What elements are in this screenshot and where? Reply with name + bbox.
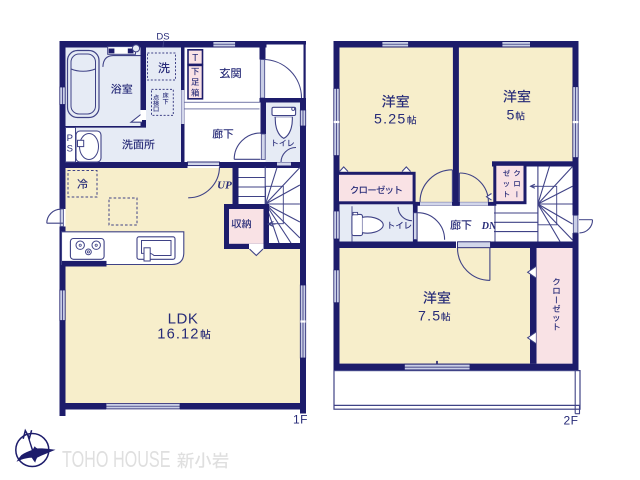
- svg-text:5.25: 5.25: [374, 112, 406, 128]
- svg-text:DS: DS: [156, 32, 169, 43]
- svg-text:P: P: [67, 133, 73, 144]
- svg-text:7.5: 7.5: [418, 308, 441, 324]
- svg-text:DN: DN: [481, 221, 497, 232]
- svg-text:TOHO HOUSE: TOHO HOUSE: [62, 446, 171, 472]
- svg-text:5: 5: [507, 108, 515, 124]
- svg-text:1F: 1F: [293, 413, 308, 427]
- svg-text:UP: UP: [217, 180, 232, 192]
- svg-text:LDK: LDK: [168, 311, 199, 328]
- svg-text:2F: 2F: [564, 414, 579, 428]
- svg-text:16.12: 16.12: [157, 326, 199, 342]
- svg-text:T: T: [192, 53, 198, 64]
- svg-text:S: S: [67, 144, 73, 155]
